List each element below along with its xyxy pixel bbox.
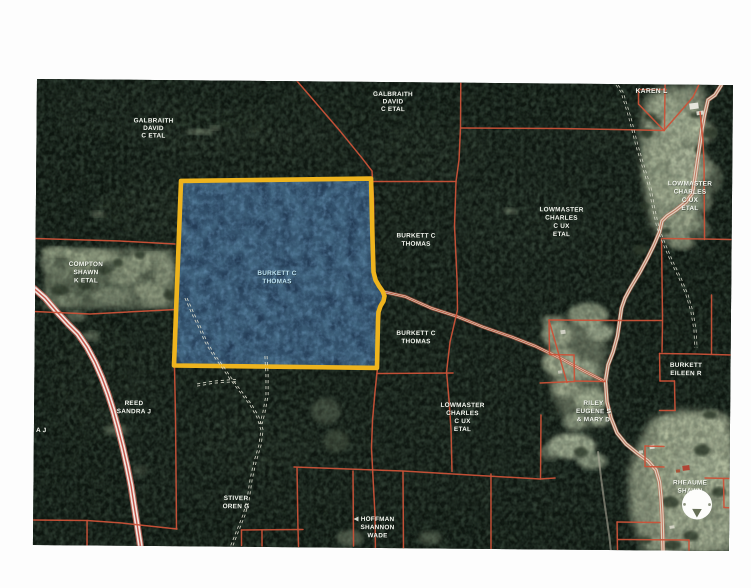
- svg-text:RHEAUME: RHEAUME: [673, 479, 708, 486]
- svg-text:EUGENE S: EUGENE S: [576, 408, 612, 415]
- svg-text:HOFFMAN: HOFFMAN: [361, 516, 395, 523]
- svg-text:THOMAS: THOMAS: [401, 338, 431, 345]
- svg-text:C ETAL: C ETAL: [381, 106, 405, 113]
- svg-text:DAVID: DAVID: [143, 125, 164, 132]
- svg-text:EILEEN R: EILEEN R: [670, 370, 702, 377]
- svg-text:SHANNON: SHANNON: [360, 524, 394, 531]
- svg-text:ETAL: ETAL: [681, 205, 698, 212]
- svg-text:GALBRAITH: GALBRAITH: [134, 117, 174, 124]
- svg-text:BURKETT C: BURKETT C: [257, 270, 296, 277]
- svg-text:BURKETT: BURKETT: [670, 362, 702, 369]
- svg-text:GALBRAITH: GALBRAITH: [373, 91, 413, 98]
- svg-text:LOWMASTER: LOWMASTER: [539, 206, 583, 213]
- svg-text:K ETAL: K ETAL: [74, 277, 98, 284]
- svg-text:DAVID: DAVID: [383, 98, 404, 105]
- svg-text:SHAWN: SHAWN: [73, 269, 98, 276]
- svg-text:ETAL: ETAL: [553, 231, 570, 238]
- svg-text:& MARY D: & MARY D: [577, 416, 610, 423]
- svg-text:STIVER: STIVER: [224, 495, 249, 502]
- svg-text:LOWMASTER: LOWMASTER: [440, 402, 484, 409]
- svg-text:C ETAL: C ETAL: [141, 132, 165, 139]
- svg-text:CHARLES: CHARLES: [446, 410, 479, 417]
- svg-text:THOMAS: THOMAS: [401, 241, 431, 248]
- svg-text:COMPTON: COMPTON: [69, 261, 103, 268]
- svg-text:CHARLES: CHARLES: [545, 215, 578, 222]
- svg-text:BURKETT C: BURKETT C: [396, 232, 435, 239]
- svg-text:BURKETT C: BURKETT C: [396, 330, 435, 337]
- svg-text:SANDRA J: SANDRA J: [117, 408, 152, 415]
- svg-text:REED: REED: [125, 400, 144, 407]
- svg-text:LOWMASTER: LOWMASTER: [668, 180, 712, 187]
- svg-text:KAREN L: KAREN L: [636, 88, 668, 95]
- svg-text:WADE: WADE: [367, 532, 388, 539]
- svg-text:THOMAS: THOMAS: [262, 278, 292, 285]
- svg-text:RILEY: RILEY: [583, 400, 604, 407]
- svg-text:OREN G: OREN G: [223, 503, 250, 510]
- svg-text:CHARLES: CHARLES: [674, 189, 707, 196]
- svg-text:C UX: C UX: [553, 223, 570, 230]
- svg-text:C UX: C UX: [682, 197, 699, 204]
- svg-text:A J: A J: [36, 427, 47, 434]
- svg-text:C UX: C UX: [454, 418, 471, 425]
- svg-text:ETAL: ETAL: [454, 426, 471, 433]
